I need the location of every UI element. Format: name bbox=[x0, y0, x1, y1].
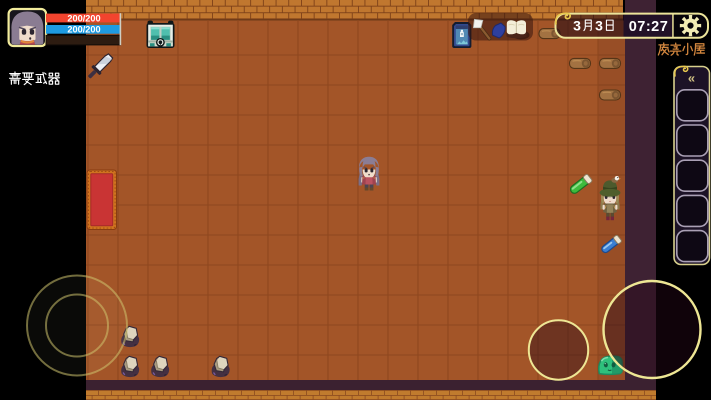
svg-text:07:27: 07:27 bbox=[629, 19, 669, 35]
svg-text:3: 3 bbox=[595, 18, 603, 34]
svg-text:200/200: 200/200 bbox=[67, 25, 100, 35]
svg-text:200/200: 200/200 bbox=[67, 13, 100, 23]
svg-text:«: « bbox=[688, 71, 695, 86]
svg-text:3: 3 bbox=[573, 18, 581, 34]
